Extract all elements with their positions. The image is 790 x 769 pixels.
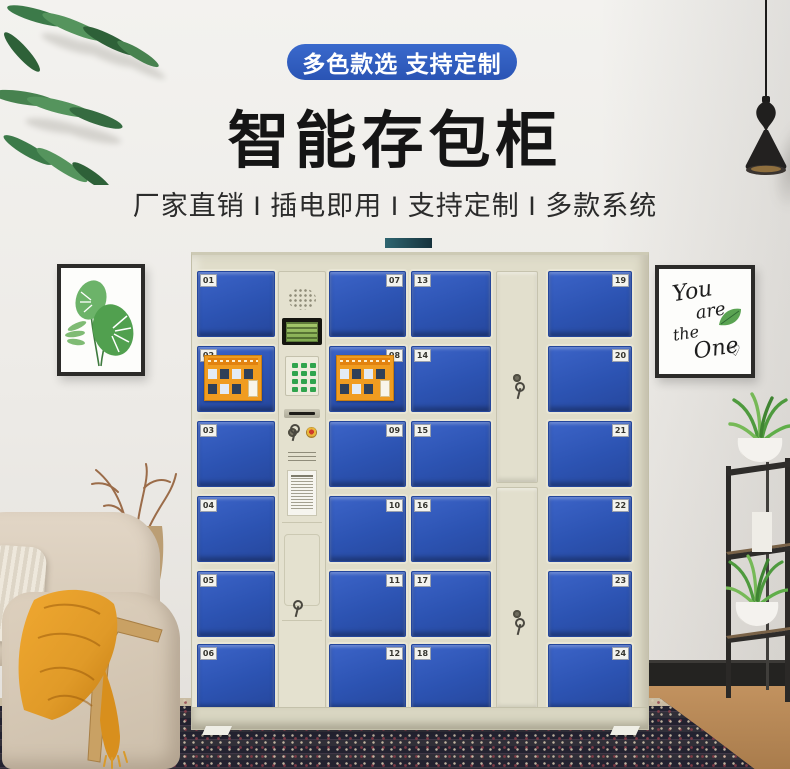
door-number-label: 09 xyxy=(387,425,402,436)
teal-divider xyxy=(385,238,432,248)
door-number-label: 19 xyxy=(613,275,628,286)
door-number-label: 16 xyxy=(415,500,430,511)
locker-door-02: 02 xyxy=(197,346,275,412)
door-number-label: 24 xyxy=(613,648,628,659)
tall-door-column xyxy=(496,271,538,710)
door-number-label: 05 xyxy=(201,575,216,586)
hanging-key-icon xyxy=(291,600,301,618)
door-number-label: 06 xyxy=(201,648,216,659)
door-number-label: 01 xyxy=(201,275,216,286)
locker-door-18: 18 xyxy=(411,644,491,710)
wall-art-calligraphy: You are the One ♡ xyxy=(655,265,755,378)
wall-art-monstera xyxy=(57,264,145,376)
locker-door-20: 20 xyxy=(548,346,632,412)
ribbon-label: 多色款选 支持定制 xyxy=(302,45,501,79)
locker-door-12: 12 xyxy=(329,644,406,710)
locker-door-05: 05 xyxy=(197,571,275,637)
tall-door-upper xyxy=(496,271,538,483)
potted-plant-top xyxy=(728,392,790,466)
leaf-icon xyxy=(717,307,743,329)
door-number-label: 22 xyxy=(613,500,628,511)
door-number-label: 21 xyxy=(613,425,628,436)
locker-door-14: 14 xyxy=(411,346,491,412)
locker-door-04: 04 xyxy=(197,496,275,562)
door-number-label: 17 xyxy=(415,575,430,586)
keyhole-icon xyxy=(513,610,521,618)
door-number-label: 10 xyxy=(387,500,402,511)
door-number-label: 20 xyxy=(613,350,628,361)
ticket-slot xyxy=(284,409,320,418)
hanging-key-icon xyxy=(513,382,523,400)
hanging-key-icon xyxy=(288,424,298,442)
locker-door-13: 13 xyxy=(411,271,491,337)
cabinet-foot xyxy=(610,726,640,735)
keyhole-icon xyxy=(513,374,521,382)
door-number-label: 23 xyxy=(613,575,628,586)
tall-door-lower xyxy=(496,487,538,710)
usage-instruction-sticker xyxy=(336,355,394,401)
throw-blanket xyxy=(0,560,190,769)
cabinet-base xyxy=(192,707,648,729)
locker-door-24: 24 xyxy=(548,644,632,710)
locker-door-19: 19 xyxy=(548,271,632,337)
speaker-grille-icon xyxy=(288,288,316,310)
locker-door-11: 11 xyxy=(329,571,406,637)
control-panel-column xyxy=(278,271,326,710)
locker-cabinet: 01 02 03 04 05 06 07 08 09 10 xyxy=(191,252,649,730)
hanging-key-icon xyxy=(513,618,523,636)
locker-door-23: 23 xyxy=(548,571,632,637)
door-number-label: 04 xyxy=(201,500,216,511)
door-number-label: 03 xyxy=(201,425,216,436)
locker-door-16: 16 xyxy=(411,496,491,562)
locker-door-06: 06 xyxy=(197,644,275,710)
keypad xyxy=(285,356,319,396)
ribbon-badge: 多色款选 支持定制 xyxy=(287,44,517,80)
door-number-label: 07 xyxy=(387,275,402,286)
instruction-sheet xyxy=(287,470,317,516)
usage-instruction-sticker xyxy=(204,355,262,401)
badge-icon xyxy=(306,427,317,438)
locker-door-01: 01 xyxy=(197,271,275,337)
locker-door-08: 08 xyxy=(329,346,406,412)
door-number-label: 18 xyxy=(415,648,430,659)
locker-door-17: 17 xyxy=(411,571,491,637)
lcd-screen xyxy=(282,318,322,345)
potted-plant-middle xyxy=(726,534,788,630)
locker-door-21: 21 xyxy=(548,421,632,487)
locker-door-15: 15 xyxy=(411,421,491,487)
cabinet-foot xyxy=(202,726,232,735)
locker-door-22: 22 xyxy=(548,496,632,562)
locker-door-07: 07 xyxy=(329,271,406,337)
door-number-label: 13 xyxy=(415,275,430,286)
door-number-label: 12 xyxy=(387,648,402,659)
locker-door-03: 03 xyxy=(197,421,275,487)
panel-text-lines xyxy=(288,452,316,461)
product-poster: You are the One ♡ 多色款选 支持定制 智能存包柜 厂家直销 I… xyxy=(0,0,790,769)
door-number-label: 11 xyxy=(387,575,402,586)
door-number-label: 14 xyxy=(415,350,430,361)
door-number-label: 15 xyxy=(415,425,430,436)
locker-door-10: 10 xyxy=(329,496,406,562)
page-title: 智能存包柜 xyxy=(0,90,790,180)
locker-door-09: 09 xyxy=(329,421,406,487)
page-subtitle: 厂家直销 I 插电即用 I 支持定制 I 多款系统 xyxy=(0,184,790,223)
